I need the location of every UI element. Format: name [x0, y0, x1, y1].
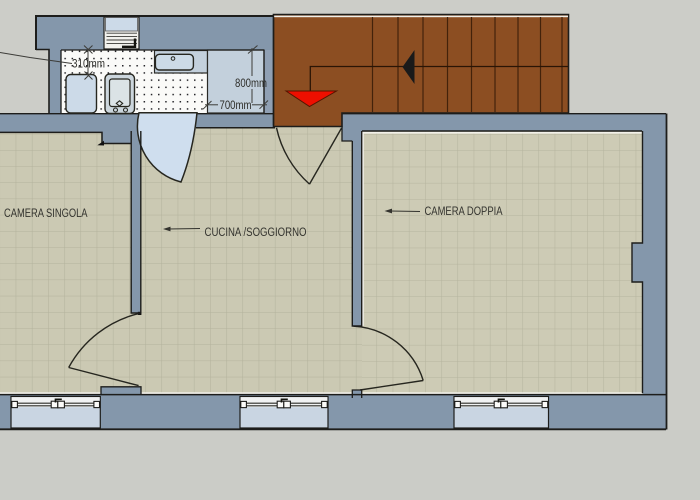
svg-text:800mm: 800mm	[235, 78, 267, 90]
svg-text:CAMERA DOPPIA: CAMERA DOPPIA	[425, 206, 503, 218]
svg-text:CUCINA /SOGGIORNO: CUCINA /SOGGIORNO	[205, 227, 307, 239]
svg-text:CAMERA SINGOLA: CAMERA SINGOLA	[4, 208, 88, 220]
svg-text:700mm: 700mm	[220, 100, 252, 112]
svg-text:310mm: 310mm	[72, 59, 105, 71]
